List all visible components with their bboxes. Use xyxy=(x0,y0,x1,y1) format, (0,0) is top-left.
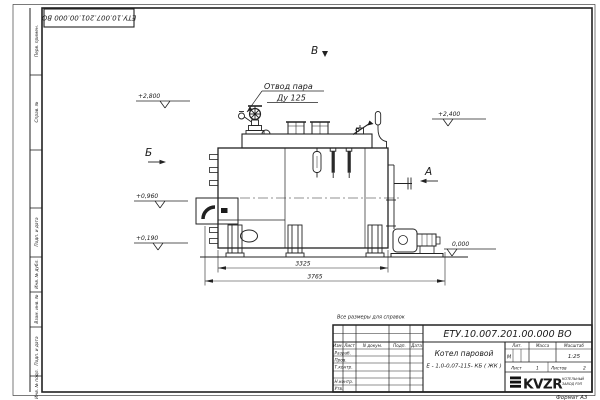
tb-row-prov: Пров. xyxy=(335,358,347,363)
frame-side-labels: Перв. примен. Справ. № Подп. и дата Инв.… xyxy=(34,14,136,399)
dim-inner-length: 3325 xyxy=(295,261,310,268)
logo-sub1: КОТЕЛЬНЫЙ xyxy=(562,376,584,381)
tb-row-utv: Утв. xyxy=(335,386,344,391)
logo-sub2: ЗАВОД РЭП xyxy=(562,382,583,386)
tb-row-tkontr: Т.контр. xyxy=(335,365,353,370)
view-label-a: А xyxy=(424,166,432,178)
tb-col-list: Лист xyxy=(343,343,355,348)
tb-designation: ЕТУ.10.007.201.00.000 ВО xyxy=(443,329,572,340)
reference-note: Все размеры для справок xyxy=(337,315,405,321)
elevation-2800: +2,800 xyxy=(138,93,160,100)
view-label-b: Б xyxy=(145,147,152,159)
boiler-side-view xyxy=(196,106,468,257)
gauge-capsule-pipe xyxy=(375,112,386,149)
side-label-podp-data-2: Подп. и дата xyxy=(34,336,40,366)
tb-col-podp: Подп. xyxy=(393,343,406,348)
right-duct xyxy=(386,165,412,229)
tb-col-data: Дата xyxy=(410,343,422,348)
tb-col-ndoc: N докум. xyxy=(363,343,382,348)
elevation-0960: +0,960 xyxy=(136,193,158,200)
tb-scale-header: Масштаб xyxy=(564,343,584,348)
blower-fan xyxy=(391,229,443,257)
side-label-sprav: Справ. № xyxy=(34,101,40,122)
title-block-text: ЕТУ.10.007.201.00.000 ВО Котел паровой Е… xyxy=(333,329,586,393)
side-label-vzam-inv: Взам. инв. № xyxy=(34,294,40,324)
lever-safety-valve xyxy=(353,121,374,135)
view-a-arrow-icon xyxy=(420,179,427,183)
elevation-0000: 0,000 xyxy=(452,241,469,248)
tb-product-model: Е - 1,0-0,07-115- КБ ( ЖК ) xyxy=(426,364,501,370)
callout-line2: Ду 125 xyxy=(276,94,306,103)
side-label-inv-podl: Инв. № подл. xyxy=(34,369,40,399)
water-level-gauges xyxy=(313,148,352,178)
elevation-2400: +2,400 xyxy=(438,111,460,118)
steam-outlet-callout: Отвод пара Ду 125 xyxy=(247,82,324,112)
manufacturer-logo: KVZR КОТЕЛЬНЫЙ ЗАВОД РЭП xyxy=(510,376,584,393)
tb-col-izm: Изм. xyxy=(333,343,343,348)
side-label-podp-data-1: Подп. и дата xyxy=(34,217,40,247)
boiler-general-view-drawing: Перв. примен. Справ. № Подп. и дата Инв.… xyxy=(0,0,600,400)
side-label-perv-primen: Перв. примен. xyxy=(34,25,40,57)
view-b-arrow-icon xyxy=(160,160,167,164)
tb-row-razrab: Разраб. xyxy=(335,351,351,356)
tb-sheets-value: 2 xyxy=(583,366,586,372)
burner-fan-arc xyxy=(203,207,215,219)
tb-sheets-label: Листов xyxy=(550,366,567,371)
format-note: Формат А3 xyxy=(556,395,588,400)
view-label-v: В xyxy=(311,45,318,57)
dim-overall-length: 3765 xyxy=(307,274,322,281)
logo-bars-icon xyxy=(510,377,521,380)
deck-hatches xyxy=(286,122,330,134)
view-labels: В Б А xyxy=(145,45,438,183)
top-deck xyxy=(242,134,372,148)
callout-line1: Отвод пара xyxy=(264,82,313,91)
tb-sheet-label: Лист xyxy=(510,366,522,371)
tb-sheet-value: 1 xyxy=(536,366,539,372)
left-flange-stubs xyxy=(210,155,219,244)
elevation-0190: +0,190 xyxy=(136,235,158,242)
tb-scale-value: 1:25 xyxy=(568,354,581,360)
tb-lit-value: М xyxy=(507,355,512,361)
fan-motor xyxy=(417,234,436,246)
manhole xyxy=(241,230,258,242)
logo-text: KVZR xyxy=(523,377,563,393)
view-v-arrow-icon xyxy=(322,51,328,57)
side-label-inv-dubl: Инв. № дубл. xyxy=(34,259,40,288)
tb-row-nkontr: Н.контр. xyxy=(335,379,354,384)
steam-outlet-valve xyxy=(239,106,265,134)
tb-product-name: Котел паровой xyxy=(435,349,494,358)
drawing-sheet: Перв. примен. Справ. № Подп. и дата Инв.… xyxy=(0,0,600,400)
top-stamp-designation: ЕТУ.10.007.201.00.000 ВО xyxy=(41,14,136,22)
tb-mass-header: Масса xyxy=(536,343,550,348)
tb-lit-header: Лит. xyxy=(511,343,522,348)
elevation-marks: +2,800 +2,400 +0,960 +0,190 0,000 xyxy=(134,93,496,256)
